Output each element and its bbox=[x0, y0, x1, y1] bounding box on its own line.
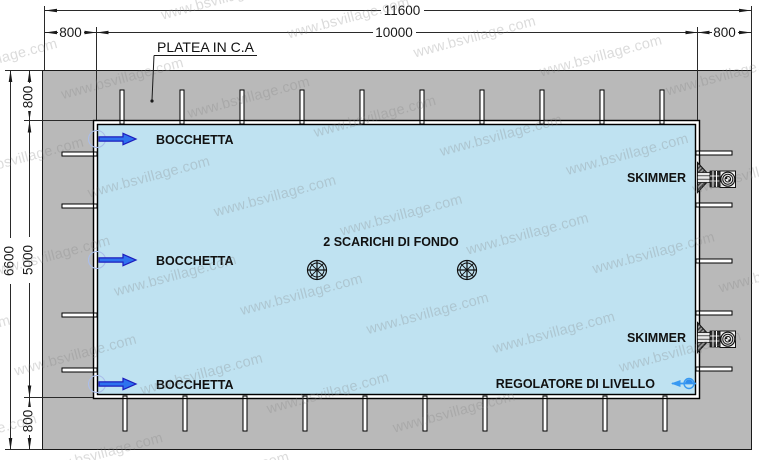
svg-text:SKIMMER: SKIMMER bbox=[627, 171, 686, 185]
svg-text:PLATEA IN C.A: PLATEA IN C.A bbox=[157, 39, 255, 55]
svg-text:BOCCHETTA: BOCCHETTA bbox=[156, 133, 234, 147]
svg-text:800: 800 bbox=[21, 86, 36, 109]
svg-text:10000: 10000 bbox=[375, 25, 413, 40]
svg-text:800: 800 bbox=[713, 25, 736, 40]
svg-text:SKIMMER: SKIMMER bbox=[627, 331, 686, 345]
svg-text:800: 800 bbox=[59, 25, 82, 40]
svg-text:REGOLATORE DI LIVELLO: REGOLATORE DI LIVELLO bbox=[496, 377, 656, 391]
